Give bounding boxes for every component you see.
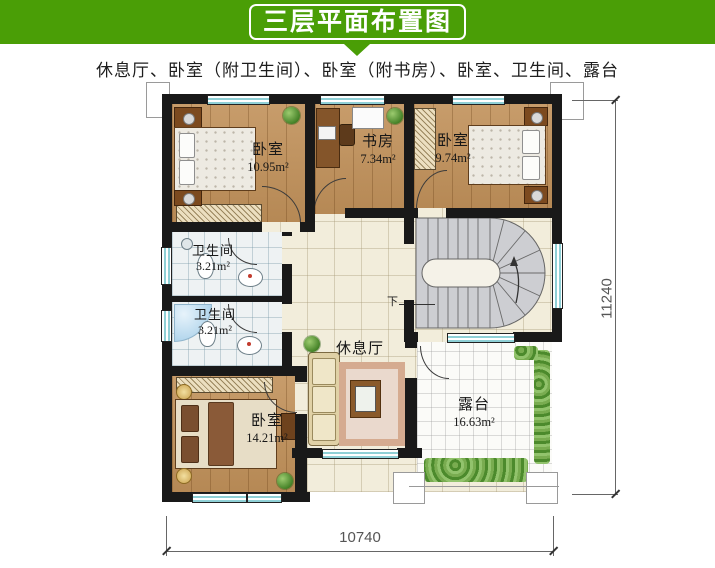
lamp-icon [531,190,543,202]
dim-ext-line [572,100,618,101]
pillow [179,133,195,158]
terrace-railing [409,486,559,487]
room-area: 3.21m² [168,259,258,274]
table-top [355,386,376,412]
room-label-bedroom-top-right: 卧室 9.74m² [408,132,498,166]
stairs-down-label: 下 [387,293,398,309]
room-label-terrace: 露台 16.63m² [424,396,524,430]
wall [397,448,422,458]
sofa-cushion [312,386,336,413]
floor-plan-page: 三层平面布置图 休息厅、卧室（附卫生间）、卧室（附书房）、卧室、卫生间、露台 [0,0,715,568]
terrace-plants-right [534,350,550,464]
wall [404,300,414,342]
page-title: 三层平面布置图 [249,4,466,40]
room-name: 休息厅 [320,340,400,359]
room-name: 卧室 [208,141,328,160]
coffee-table [350,380,381,418]
room-name: 卧室 [217,412,317,431]
lamp-icon [176,384,192,400]
room-list-subtitle: 休息厅、卧室（附卫生间）、卧室（附书房）、卧室、卫生间、露台 [0,56,715,81]
room-name: 露台 [424,396,524,415]
wall [282,332,292,376]
wall [446,208,562,218]
lamp-icon [183,113,195,125]
staircase [414,215,552,332]
dresser [352,107,384,129]
lamp-icon [183,193,195,205]
room-name: 卫生间 [168,243,258,259]
nightstand [524,186,548,204]
window [320,95,385,105]
wall [282,232,292,236]
terrace-plants-bottom [424,458,528,482]
nightstand [174,190,202,206]
wall [295,376,307,382]
dim-width-label: 10740 [166,529,554,546]
window [552,243,563,309]
room-label-lounge: 休息厅 [320,340,400,359]
room-name: 卧室 [408,132,498,151]
sink-tap-icon [247,342,251,346]
room-area: 3.21m² [170,323,260,338]
room-area: 16.63m² [424,415,524,431]
lamp-icon [531,112,543,124]
pillow [522,156,540,180]
dim-ext-line [572,494,618,495]
pillow [522,130,540,154]
wall [405,378,417,448]
room-name: 卫生间 [170,307,260,323]
wall [405,342,417,348]
plant-icon [277,473,293,489]
room-area: 10.95m² [208,160,328,176]
wardrobe [176,204,262,223]
title-banner: 三层平面布置图 [0,0,715,44]
staircase-drawing [414,215,552,332]
wall [162,222,262,232]
plant-icon [304,336,320,352]
room-label-bathroom-2: 卫生间 3.21m² [170,307,260,338]
nightstand [524,107,548,126]
room-label-bedroom-bottom-left: 卧室 14.21m² [217,412,317,446]
lamp-icon [176,468,192,484]
window [322,449,399,459]
dim-line-bottom [166,551,554,552]
wall [162,296,292,302]
wall [513,332,562,342]
wall [282,264,292,304]
dim-height-label: 11240 [599,269,616,329]
window [447,333,515,343]
terrace-post [526,472,558,504]
sink-tap-icon [248,274,252,278]
banner-pointer-icon [344,44,370,56]
room-area: 9.74m² [408,151,498,167]
room-label-bedroom-top-left: 卧室 10.95m² [208,141,328,175]
pillow [179,160,195,185]
pillow [181,436,199,463]
nightstand [174,107,202,128]
terrace-plants-corner [514,346,538,360]
pillow [181,405,199,432]
plant-icon [387,108,403,124]
window [192,493,247,503]
plant-icon [283,107,300,124]
window [207,95,270,105]
terrace-post [393,472,425,504]
window [452,95,505,105]
window [247,493,282,503]
room-label-bathroom-1: 卫生间 3.21m² [168,243,258,274]
sofa-cushion [312,358,336,385]
room-area: 14.21m² [217,431,317,447]
wall [404,208,414,244]
